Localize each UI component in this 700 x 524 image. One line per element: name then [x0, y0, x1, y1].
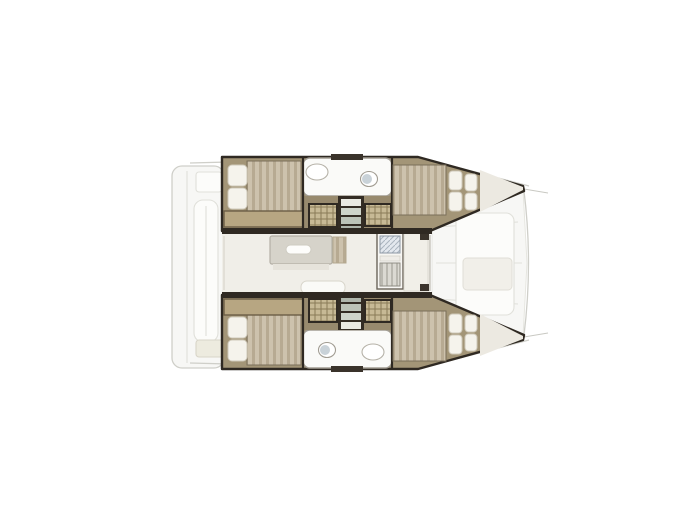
starboard-head [303, 330, 392, 372]
bulkhead-post-top [420, 233, 429, 240]
starboard-step-3 [341, 313, 361, 320]
stove [380, 263, 400, 286]
starboard-deck-hatch [331, 366, 363, 372]
starboard-forward-pillow-3 [465, 315, 477, 332]
starboard-aft-bed [247, 315, 301, 365]
starboard-aft-bench [224, 299, 306, 315]
starboard-aft-pillow-2 [228, 340, 247, 361]
port-step-3 [341, 217, 361, 224]
port-step-1 [341, 199, 361, 206]
port-step-2 [341, 208, 361, 215]
table-centerpiece [286, 245, 311, 254]
port-forward-pillow-4 [465, 193, 477, 210]
starboard-forward-pillow-4 [465, 334, 477, 351]
starboard-head-sink [362, 344, 384, 360]
starboard-step-2 [341, 304, 361, 311]
catamaran-floor-plan [0, 0, 700, 524]
starboard-toilet-seat [320, 345, 330, 355]
galley-sink [380, 236, 400, 253]
starboard-bow-tip-line [524, 333, 548, 337]
port-toilet-seat [362, 174, 372, 184]
port-aft-bed [247, 161, 301, 211]
starboard-aft-cabin [224, 299, 306, 365]
port-aft-pillow-1 [228, 165, 247, 186]
galley-worktop [380, 256, 400, 261]
forward-sofa [404, 233, 428, 291]
port-aft-cabin [224, 161, 306, 227]
starboard-locker-left [309, 299, 337, 322]
aft-deck-locker-port [196, 172, 222, 192]
starboard-step-4 [341, 322, 361, 329]
starboard-forward-bed [393, 311, 446, 361]
table-shadow [273, 264, 329, 270]
port-inner-wall [222, 228, 432, 234]
floor-plan-page [0, 0, 700, 524]
port-aft-bench [224, 211, 306, 227]
starboard-forward-pillow-2 [449, 335, 462, 354]
port-locker-right [365, 204, 391, 226]
port-head [303, 154, 392, 196]
port-forward-pillow-2 [449, 192, 462, 211]
port-deck-hatch [331, 154, 363, 160]
foredeck-table [463, 258, 512, 290]
port-aft-pillow-2 [228, 188, 247, 209]
starboard-inner-wall [222, 292, 432, 298]
starboard-locker-right [365, 300, 391, 322]
port-forward-bed [393, 165, 446, 215]
starboard-aft-pillow-1 [228, 317, 247, 338]
bulkhead-post-bottom [420, 284, 429, 291]
saloon-seat-cushion [333, 237, 346, 263]
saloon [222, 233, 430, 294]
port-forward-pillow-1 [449, 171, 462, 190]
port-locker-left [309, 204, 337, 227]
port-head-sink [306, 164, 328, 180]
starboard-forward-pillow-1 [449, 314, 462, 333]
port-forward-pillow-3 [465, 174, 477, 191]
port-bow-tip-line [524, 189, 548, 193]
